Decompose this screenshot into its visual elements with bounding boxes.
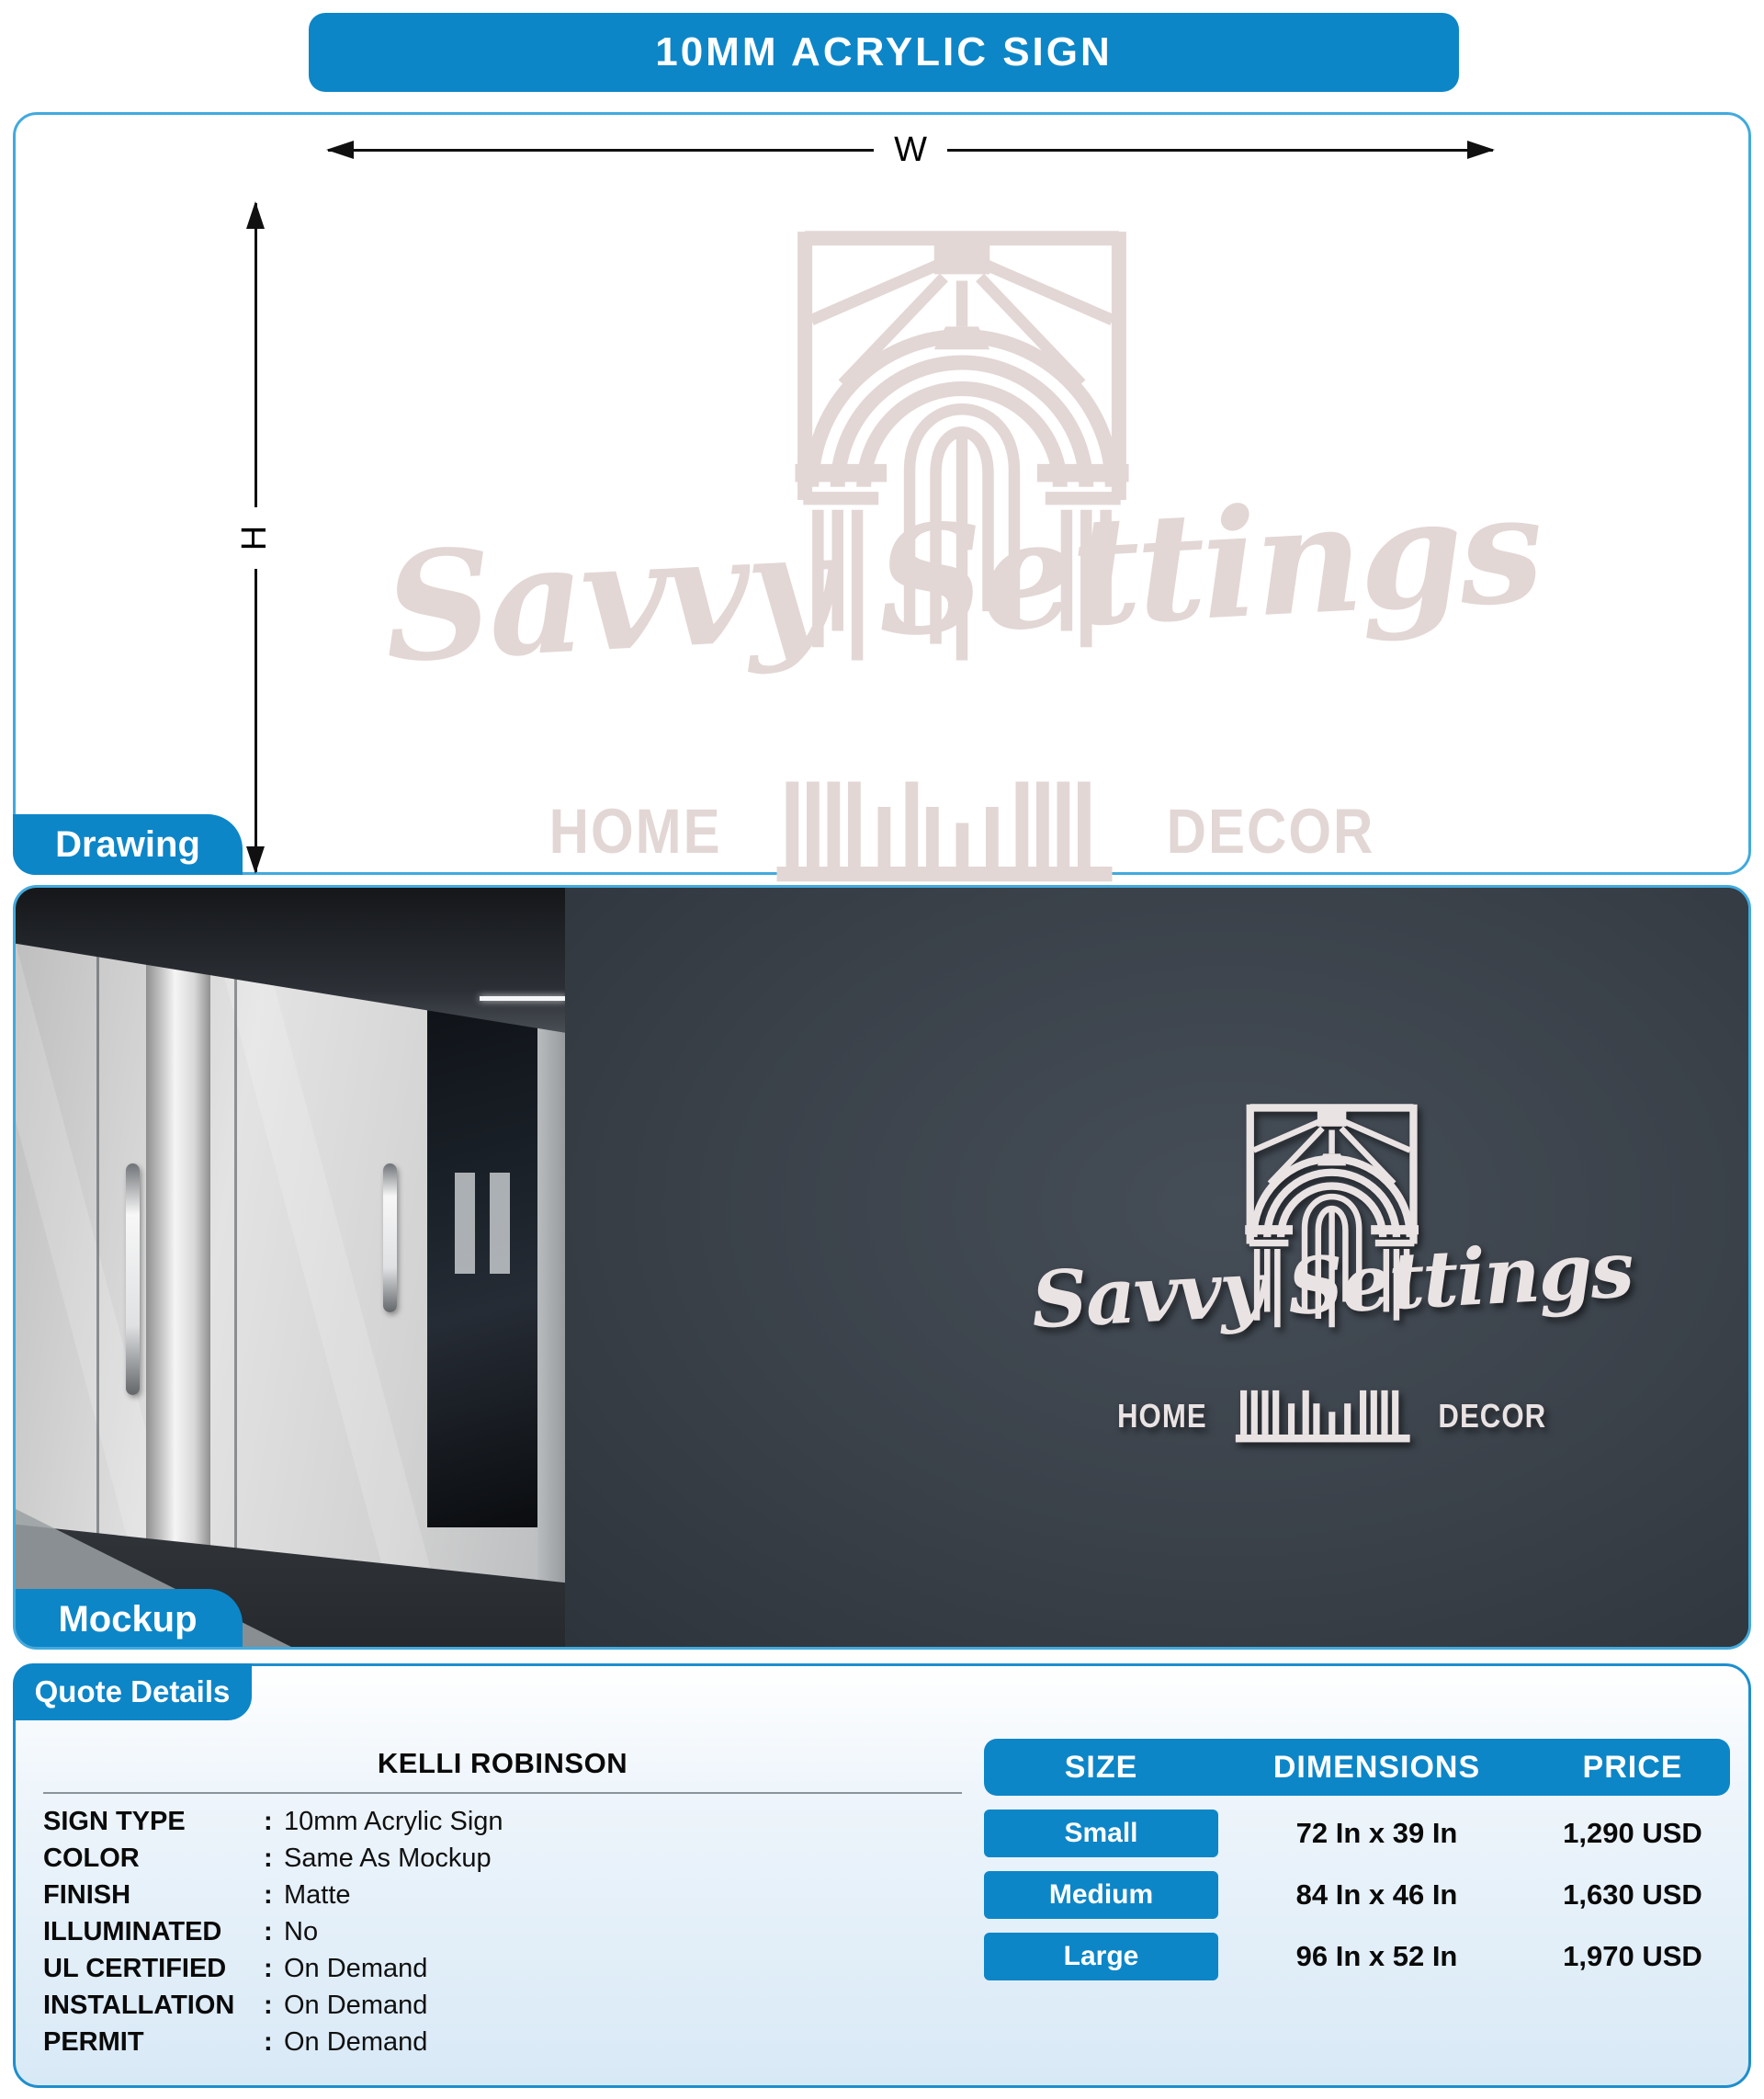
logo-tagline: HOME DEC — [1031, 1382, 1633, 1445]
spec-value: 10mm Acrylic Sign — [284, 1807, 962, 1837]
dimensions-cell: 84 In x 46 In — [1218, 1878, 1535, 1912]
ceiling-light — [480, 996, 567, 1001]
size-button-large[interactable]: Large — [984, 1933, 1218, 1980]
page-title: 10MM ACRYLIC SIGN — [655, 29, 1113, 75]
drawing-tag-label: Drawing — [55, 824, 200, 866]
customer-name: KELLI ROBINSON — [43, 1747, 962, 1780]
brand-script-text: Savvy Settings — [1028, 1213, 1635, 1356]
spec-row-illuminated: ILLUMINATED : No — [43, 1917, 962, 1954]
drawing-panel: W H — [13, 112, 1751, 875]
width-arrow-left-line — [328, 149, 874, 152]
logo-word-home: HOME — [1117, 1397, 1207, 1435]
logo-word-home: HOME — [549, 795, 722, 868]
glass-frame-post — [146, 942, 210, 1605]
height-dimension-label: H — [235, 525, 275, 550]
quote-tag-label: Quote Details — [35, 1674, 231, 1709]
spec-value: Same As Mockup — [284, 1844, 962, 1874]
sign-artwork-mockup: Savvy Settings HOME — [1031, 1101, 1633, 1445]
glass-edge-line — [96, 943, 99, 1586]
door-handle — [126, 1163, 140, 1395]
price-cell: 1,630 USD — [1535, 1878, 1730, 1912]
logo-tagline: HOME DEC — [383, 766, 1541, 885]
sign-artwork-drawing: Savvy Settings HOME — [383, 225, 1541, 887]
dimensions-cell: 96 In x 52 In — [1218, 1940, 1535, 1973]
logo-word-decor: DECOR — [1438, 1397, 1546, 1435]
spec-value: On Demand — [284, 1954, 962, 1984]
size-button-medium[interactable]: Medium — [984, 1871, 1218, 1919]
width-dimension-arrow: W — [328, 131, 1493, 168]
size-button-small[interactable]: Small — [984, 1810, 1218, 1857]
drawing-section-tag: Drawing — [13, 814, 243, 875]
spec-row-sign-type: SIGN TYPE : 10mm Acrylic Sign — [43, 1807, 962, 1844]
spec-value: Matte — [284, 1880, 962, 1911]
barcode-bars-icon — [761, 766, 1128, 885]
door-handle — [383, 1163, 397, 1312]
quote-section-tag: Quote Details — [13, 1663, 252, 1720]
office-interior-photo — [16, 888, 578, 1647]
width-arrow-right-line — [947, 149, 1493, 152]
spec-row-permit: PERMIT : On Demand — [43, 2027, 962, 2064]
customer-name-divider — [43, 1792, 962, 1794]
spec-value: No — [284, 1917, 962, 1947]
table-header-size: SIZE — [984, 1750, 1218, 1786]
spec-colon: : — [264, 2027, 284, 2058]
dimensions-cell: 72 In x 39 In — [1218, 1817, 1535, 1850]
height-arrow-top-line — [254, 203, 257, 507]
brand-script-text: Savvy Settings — [379, 441, 1546, 718]
quote-spec-column: KELLI ROBINSON SIGN TYPE : 10mm Acrylic … — [43, 1747, 962, 2064]
price-cell: 1,970 USD — [1535, 1940, 1730, 1973]
logo-word-decor: DECOR — [1167, 795, 1375, 868]
spec-label: SIGN TYPE — [43, 1807, 264, 1837]
height-arrow-bottom-line — [254, 569, 257, 873]
spec-label: FINISH — [43, 1880, 264, 1911]
price-cell: 1,290 USD — [1535, 1817, 1730, 1850]
spec-row-color: COLOR : Same As Mockup — [43, 1844, 962, 1880]
table-row: Medium 84 In x 46 In 1,630 USD — [984, 1871, 1730, 1919]
spec-row-ul-certified: UL CERTIFIED : On Demand — [43, 1954, 962, 1991]
mockup-tag-label: Mockup — [58, 1599, 197, 1640]
spec-colon: : — [264, 1844, 284, 1874]
table-header-dimensions: DIMENSIONS — [1218, 1750, 1535, 1786]
glass-edge-line — [234, 943, 237, 1586]
quote-details-panel: Quote Details KELLI ROBINSON SIGN TYPE :… — [13, 1663, 1751, 2088]
spec-label: INSTALLATION — [43, 1991, 264, 2021]
door-reflection-bars — [455, 1173, 510, 1274]
spec-label: PERMIT — [43, 2027, 264, 2058]
mockup-section-tag: Mockup — [13, 1589, 243, 1650]
spec-colon: : — [264, 1991, 284, 2021]
width-dimension-label: W — [894, 130, 927, 170]
spec-colon: : — [264, 1807, 284, 1837]
barcode-bars-icon — [1227, 1382, 1419, 1445]
spec-value: On Demand — [284, 2027, 962, 2058]
spec-row-finish: FINISH : Matte — [43, 1880, 962, 1917]
spec-label: ILLUMINATED — [43, 1917, 264, 1947]
spec-value: On Demand — [284, 1991, 962, 2021]
spec-label: COLOR — [43, 1844, 264, 1874]
table-header-row: SIZE DIMENSIONS PRICE — [984, 1739, 1730, 1796]
table-row: Large 96 In x 52 In 1,970 USD — [984, 1933, 1730, 1980]
size-price-table: SIZE DIMENSIONS PRICE Small 72 In x 39 I… — [984, 1739, 1730, 1980]
spec-colon: : — [264, 1880, 284, 1911]
table-header-price: PRICE — [1535, 1750, 1730, 1786]
table-row: Small 72 In x 39 In 1,290 USD — [984, 1810, 1730, 1857]
height-dimension-arrow: H — [234, 203, 277, 872]
spec-label: UL CERTIFIED — [43, 1954, 264, 1984]
spec-colon: : — [264, 1917, 284, 1947]
spec-colon: : — [264, 1954, 284, 1984]
spec-row-installation: INSTALLATION : On Demand — [43, 1991, 962, 2027]
mockup-panel: Savvy Settings HOME — [13, 885, 1751, 1650]
page-title-banner: 10MM ACRYLIC SIGN — [309, 13, 1459, 92]
